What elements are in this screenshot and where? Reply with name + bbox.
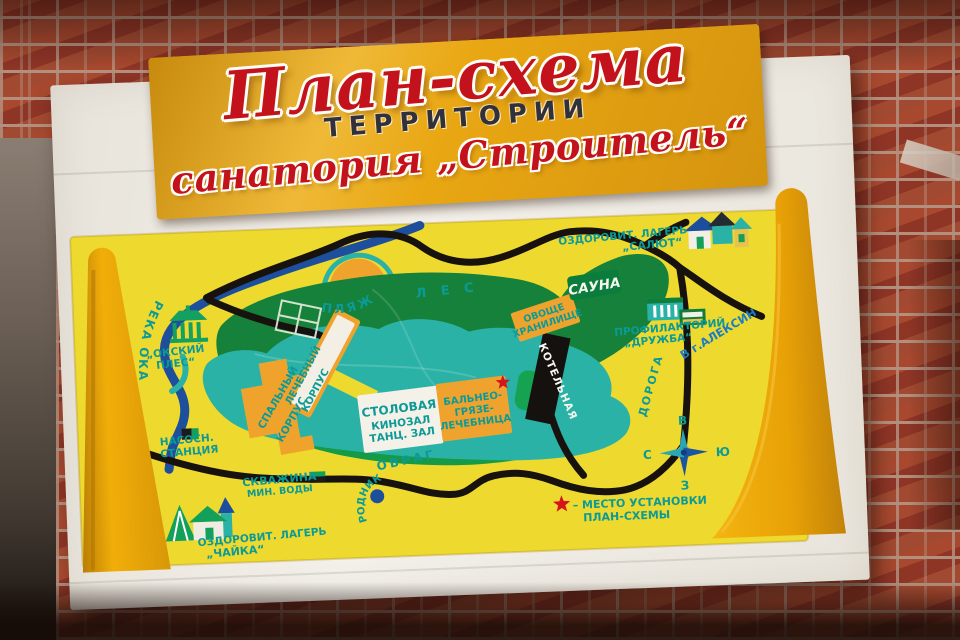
compass-top-letter: В (678, 413, 688, 427)
banner: План-схема ТЕРРИТОРИИ санатория „Строите… (148, 24, 768, 220)
wall-shadow-right (908, 240, 960, 530)
compass-right-letter: Ю (716, 445, 731, 460)
concrete-pillar (0, 138, 56, 640)
building-dining: СТОЛОВАЯ КИНОЗАЛ ТАНЦ. ЗАЛ (357, 386, 444, 454)
wall-shadow-bottom (0, 582, 960, 640)
compass-left-letter: С (643, 448, 653, 462)
compass-bottom-letter: З (681, 478, 690, 492)
site-map: СТОЛОВАЯ КИНОЗАЛ ТАНЦ. ЗАЛ БАЛЬНЕО- ГРЯЗ… (61, 177, 864, 611)
